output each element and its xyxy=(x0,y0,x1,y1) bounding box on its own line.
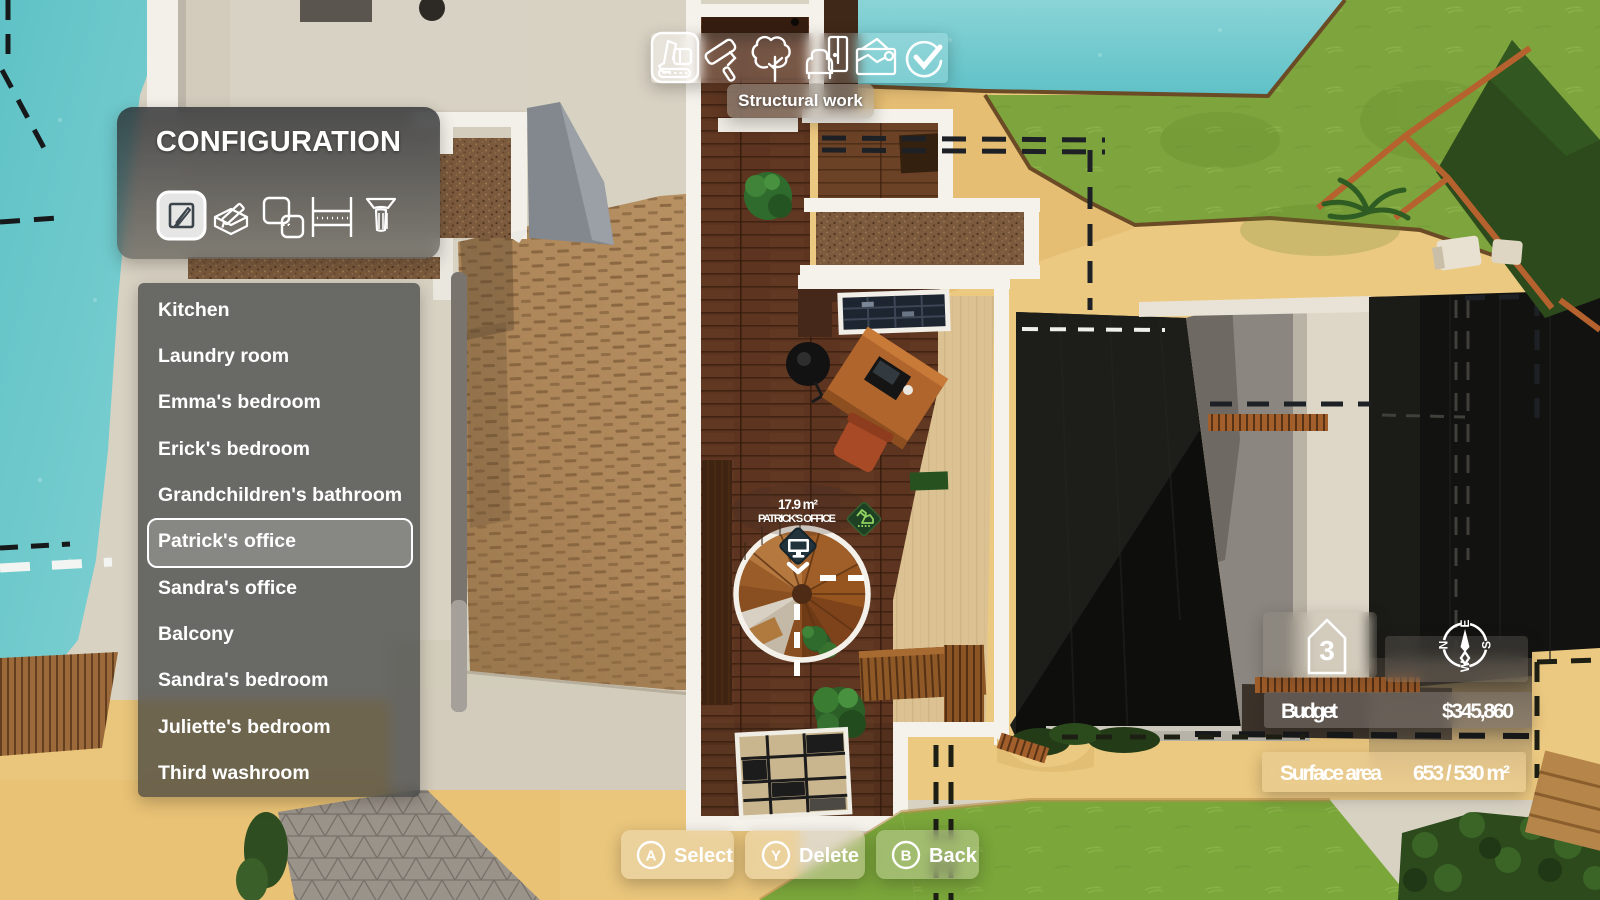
svg-text:Y: Y xyxy=(771,848,781,865)
svg-text:Delete: Delete xyxy=(799,845,859,867)
svg-text:$345,860: $345,860 xyxy=(1442,700,1514,723)
svg-text:Select: Select xyxy=(674,845,733,867)
svg-text:Surface area: Surface area xyxy=(1280,762,1382,785)
svg-text:Budget: Budget xyxy=(1281,700,1338,723)
svg-text:B: B xyxy=(901,848,912,865)
svg-text:N: N xyxy=(1437,641,1451,650)
svg-text:3: 3 xyxy=(1319,635,1335,666)
svg-text:S: S xyxy=(1480,641,1494,649)
svg-text:E: E xyxy=(1458,619,1472,627)
svg-text:17.9 m²: 17.9 m² xyxy=(778,497,819,512)
svg-text:PATRICK'S OFFICE: PATRICK'S OFFICE xyxy=(758,513,836,525)
svg-text:Back: Back xyxy=(929,845,978,867)
svg-text:653 / 530 m²: 653 / 530 m² xyxy=(1413,762,1510,785)
svg-text:A: A xyxy=(646,848,657,865)
